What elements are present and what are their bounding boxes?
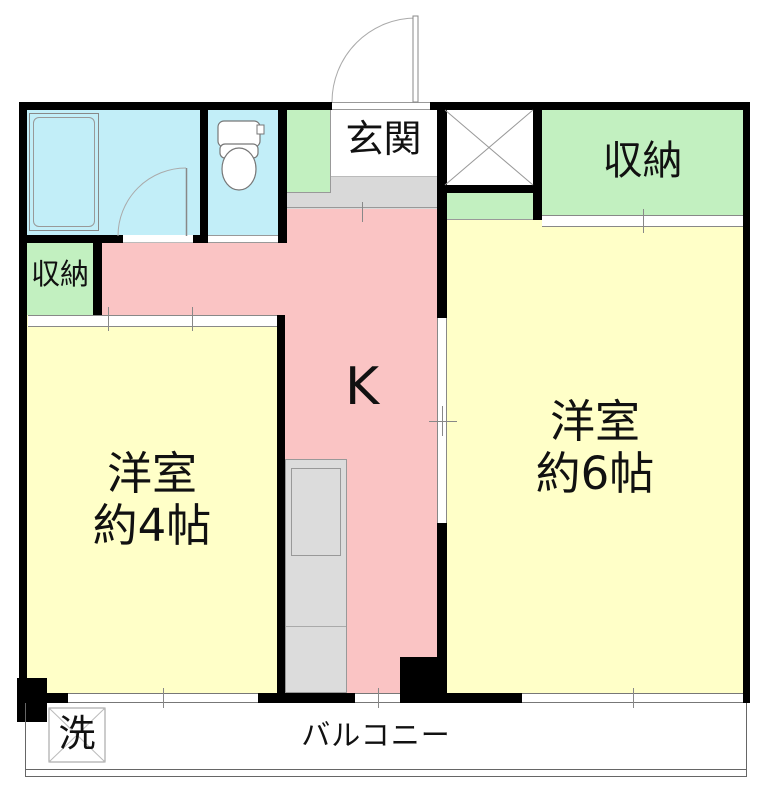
storage-right-label: 収納 (542, 138, 743, 184)
kitchen-counter-divider (286, 626, 346, 627)
bath-door-opening (123, 235, 193, 243)
entrance-door-leaf (413, 16, 418, 102)
wall-kitchen-right-top (437, 102, 447, 318)
western-room-4-label: 洋室 約4帖 (27, 448, 277, 552)
entrance-door-arc (332, 18, 416, 102)
bathtub-inner (33, 117, 95, 227)
wall-shaft-bottom (437, 185, 542, 193)
shaft-x-line-1 (445, 110, 533, 185)
storage-right-door-tick (643, 209, 644, 233)
storage-alcove-area (445, 193, 533, 220)
balcony-inner-rail (25, 769, 747, 770)
toilet-room-area (208, 110, 278, 235)
entrance-step-tick (362, 202, 363, 222)
wall-bottom-mid (447, 693, 522, 703)
western-room-4-size: 約4帖 (27, 500, 277, 552)
kitchen-label: K (277, 358, 447, 418)
wall-kitchen-right-bottom (437, 523, 447, 703)
balcony-label: バルコニー (276, 719, 476, 752)
wall-corner-stub (45, 693, 68, 703)
wall-left (19, 102, 27, 678)
shaft-x-line-2 (445, 110, 533, 185)
storage-left-label: 収納 (25, 258, 95, 291)
western-room-4-name: 洋室 (27, 448, 277, 500)
room4-door-tick-2 (192, 307, 193, 331)
room4-sliding-doors (28, 315, 277, 327)
western-room-6-size: 約6帖 (447, 448, 743, 500)
entrance-label: 玄関 (330, 118, 437, 162)
laundry-label: 洗 (49, 713, 105, 756)
shoe-cabinet (287, 110, 331, 193)
wall-shaft-right (533, 102, 542, 220)
room4-door-tick-1 (108, 307, 109, 331)
western-room-6-label: 洋室 約6帖 (447, 396, 743, 500)
wall-bath-toilet (200, 110, 208, 235)
wall-right (743, 102, 750, 703)
toilet-door-opening (208, 235, 278, 243)
wall-bottom-left (258, 693, 355, 703)
western-room-6-name: 洋室 (447, 396, 743, 448)
wall-toilet-entrance (278, 110, 287, 243)
floor-plan: 玄関 収納 収納 洋室 約4帖 洋室 約6帖 K バルコニー 洗 (0, 0, 768, 800)
kitchen-sink (291, 468, 341, 556)
entrance-threshold (332, 102, 430, 110)
